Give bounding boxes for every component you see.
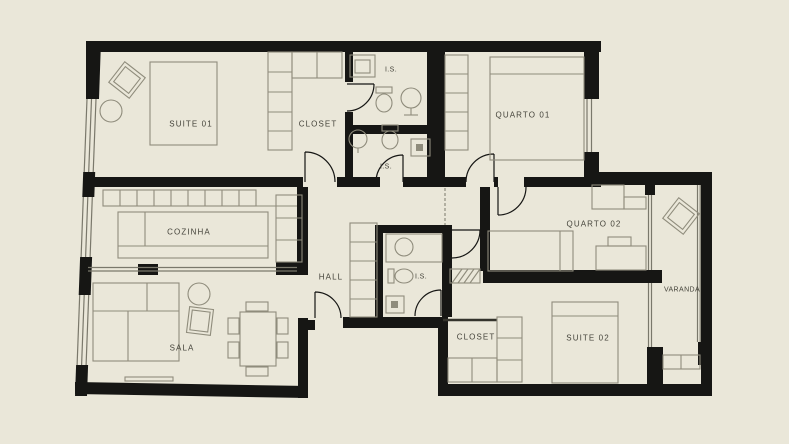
suite01-rug xyxy=(109,62,145,98)
counter xyxy=(103,190,256,206)
chair xyxy=(246,367,268,376)
toilet-bowl xyxy=(376,94,392,112)
sala-furniture xyxy=(93,283,288,381)
sink xyxy=(401,88,421,108)
toilet-bowl xyxy=(395,269,413,283)
suite01-pouf xyxy=(100,100,122,122)
toilet-tank xyxy=(376,87,392,93)
chair xyxy=(228,318,239,334)
closet1-shelves xyxy=(268,52,342,150)
suite01-bed xyxy=(150,62,217,145)
room-label-quarto02: QUARTO 02 xyxy=(567,220,622,229)
desk xyxy=(596,246,646,270)
dining-table xyxy=(240,312,276,366)
room-label-hall: HALL xyxy=(319,273,343,282)
room-label-closet1: CLOSET xyxy=(299,120,338,129)
cozinha-furniture xyxy=(103,190,302,262)
room-label-suite01: SUITE 01 xyxy=(169,120,212,129)
floor-plan: SUITE 01 CLOSET I.S. QUARTO 01 I.S. COZI… xyxy=(0,0,789,444)
sink xyxy=(395,238,413,256)
quarto01-bed xyxy=(490,57,584,160)
chair xyxy=(228,342,239,358)
room-label-closet2: CLOSET xyxy=(457,333,496,342)
room-label-is2: I.S. xyxy=(380,164,392,171)
quarto01-furniture xyxy=(445,55,584,160)
chair xyxy=(246,302,268,311)
closet2-shelves xyxy=(497,317,522,382)
sofa xyxy=(93,283,179,361)
room-label-quarto01: QUARTO 01 xyxy=(496,111,551,120)
desk-chair xyxy=(608,237,631,246)
varanda-rug xyxy=(663,198,699,234)
wardrobe xyxy=(592,185,624,209)
suite02-bed xyxy=(552,302,618,383)
room-label-varanda: VARANDA xyxy=(664,287,700,294)
wardrobe xyxy=(445,55,468,150)
vanity xyxy=(386,234,442,262)
bathroom1-fixtures xyxy=(350,55,421,115)
armchair xyxy=(187,307,214,336)
suite01-furniture xyxy=(100,62,217,145)
suite02-furniture xyxy=(448,302,618,383)
room-label-cozinha: COZINHA xyxy=(167,228,211,237)
room-label-suite02: SUITE 02 xyxy=(566,334,609,343)
room-label-sala: SALA xyxy=(170,344,195,353)
varanda-furniture xyxy=(663,198,700,369)
tv-console xyxy=(125,377,173,381)
hall-cabinets xyxy=(350,223,377,317)
chair xyxy=(277,342,288,358)
washbasin xyxy=(350,55,375,77)
side-table xyxy=(188,283,210,305)
room-label-is1: I.S. xyxy=(385,67,397,74)
toilet-tank xyxy=(388,269,394,283)
chair xyxy=(277,318,288,334)
room-label-is3: I.S. xyxy=(415,274,427,281)
